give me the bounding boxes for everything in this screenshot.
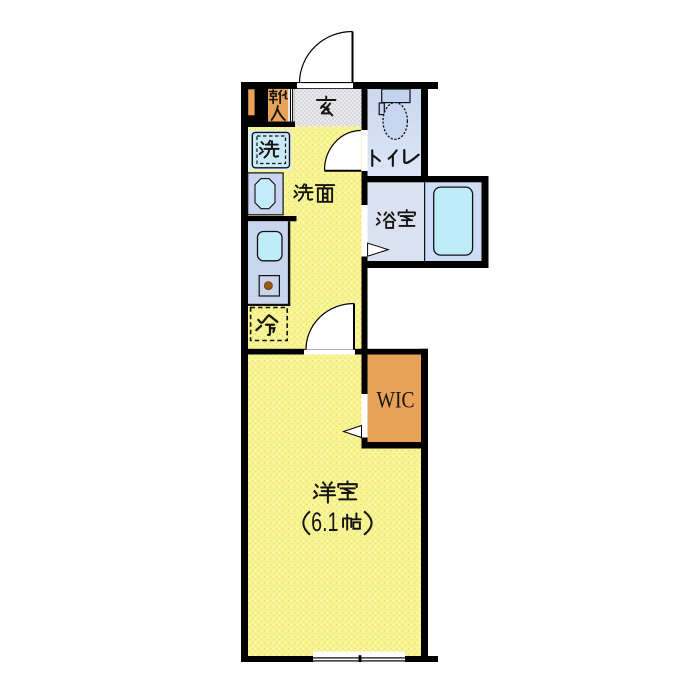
svg-text:WIC: WIC bbox=[377, 387, 415, 413]
svg-text:6.1: 6.1 bbox=[311, 508, 338, 538]
